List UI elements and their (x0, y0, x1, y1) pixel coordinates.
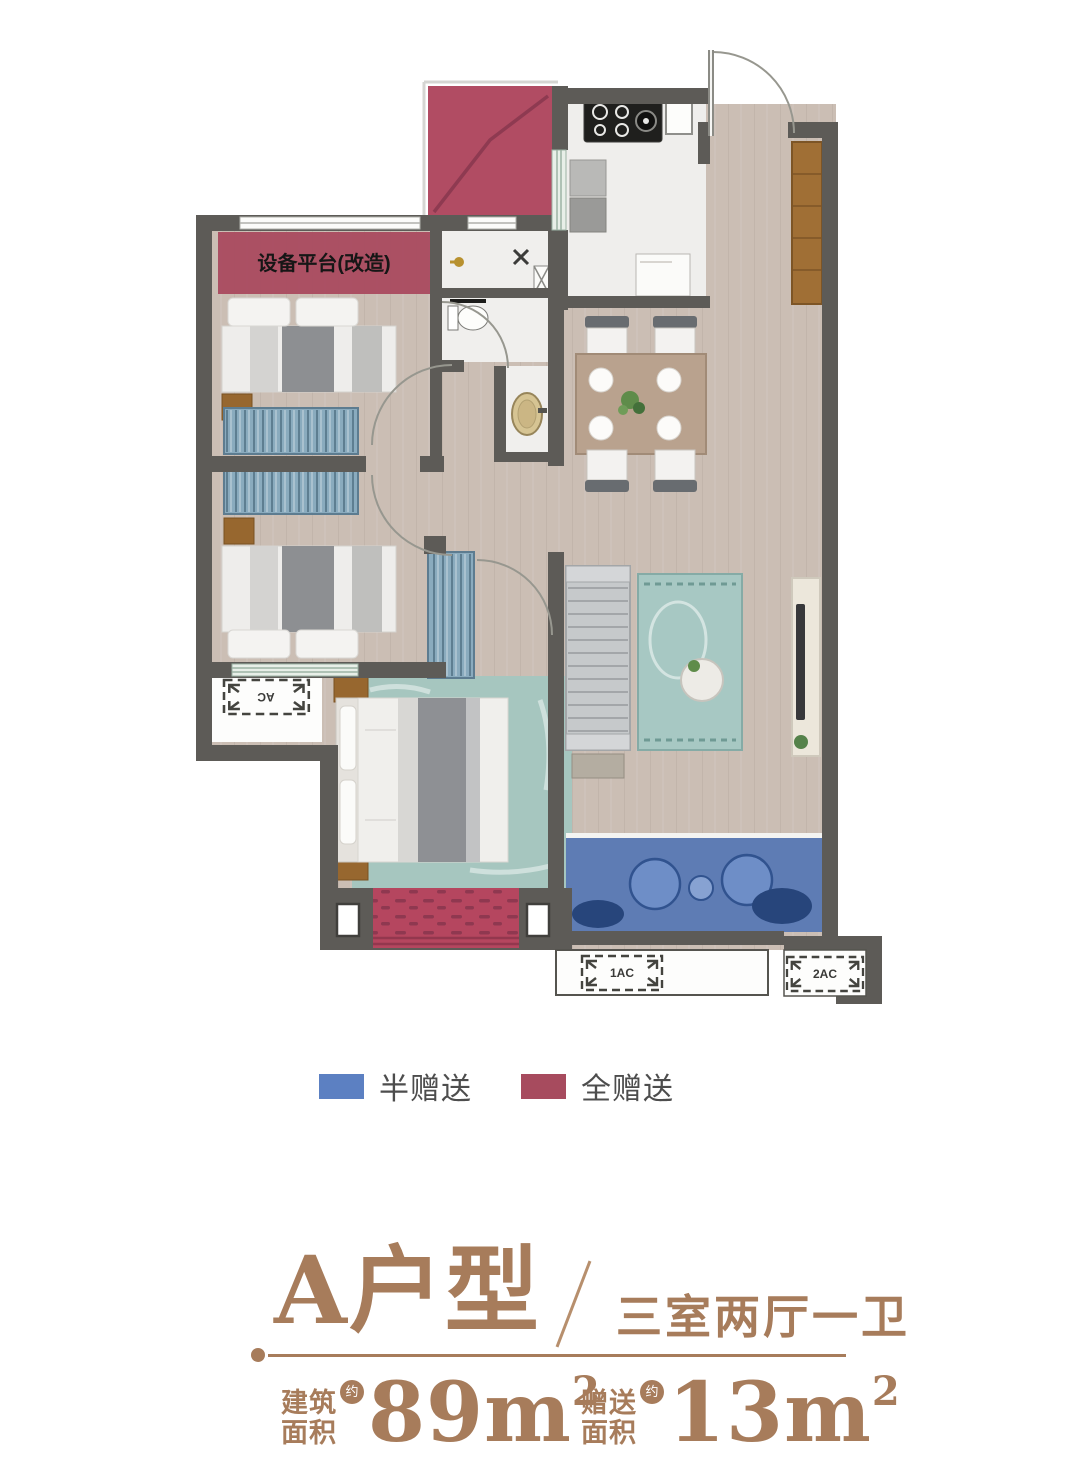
bathroom-window (468, 217, 516, 229)
balcony-plant (572, 900, 624, 928)
stat-gift-area-value: 13m (668, 1372, 872, 1454)
ac-platform-left: AC (212, 678, 322, 742)
top-full-gift-zone (424, 82, 558, 218)
balcony-plant (752, 888, 812, 924)
kitchen-cabinet (636, 254, 690, 296)
approx-badge: 约 (340, 1380, 364, 1404)
sofa (566, 566, 630, 750)
stat-label-top: 赠送 (581, 1388, 637, 1418)
wardrobe (224, 470, 358, 514)
tv (796, 604, 805, 720)
equipment-platform-label: 设备平台(改造) (257, 251, 390, 275)
stat-gift-area-label: 赠送 面积 (581, 1388, 637, 1448)
approx-badge: 约 (640, 1380, 664, 1404)
rug-plant (688, 660, 700, 672)
ac2-label: 2AC (813, 967, 837, 981)
title-divider-slash (556, 1261, 592, 1348)
full-gift-label: 全赠送 (581, 1064, 674, 1108)
balcony-lounge-chair (630, 859, 680, 909)
full-gift-swatch (521, 1074, 566, 1099)
shoe-cabinet (792, 142, 822, 304)
stat-gift-area: 赠送 面积 约 13m 2 (581, 1372, 900, 1454)
tv-plant (794, 735, 808, 749)
half-gift-label: 半赠送 (379, 1064, 472, 1108)
wardrobe (224, 408, 358, 454)
side-table (572, 754, 624, 778)
ac-platform-2: 2AC (784, 950, 866, 996)
tv-cabinet (792, 578, 820, 756)
stat-label-bottom: 面积 (281, 1418, 337, 1448)
bay-window-post (337, 904, 359, 936)
stat-label-top: 建筑 (281, 1388, 337, 1418)
bedroom2-window (232, 664, 358, 676)
balcony (566, 833, 822, 932)
title-underline (268, 1354, 846, 1357)
legend: 半赠送 全赠送 (0, 1064, 1080, 1100)
bedroom1-window (240, 217, 420, 229)
unit-layout-subtitle: 三室两厅一卫 (616, 1281, 910, 1347)
bed (336, 698, 508, 862)
stat-building-area-label: 建筑 面积 (281, 1388, 337, 1448)
title-line-dot (251, 1348, 265, 1362)
nightstand (224, 518, 254, 544)
dining-chair (585, 316, 629, 358)
balcony-table (689, 876, 713, 900)
stove (584, 100, 662, 142)
stat-label-bottom: 面积 (581, 1418, 637, 1448)
kitchen-window (552, 150, 566, 230)
master-wardrobe (428, 552, 474, 678)
legend-item-half-gift: 半赠送 (319, 1064, 472, 1108)
carpet-full-gift-zone (373, 888, 519, 948)
ac-side-label: AC (257, 690, 275, 704)
stat-building-area-value: 89m (368, 1372, 572, 1454)
half-gift-swatch (319, 1074, 364, 1099)
dining-chair (653, 316, 697, 358)
unit-title: A户型 (274, 1244, 541, 1338)
kitchen-window-box (666, 102, 692, 134)
floor-plan: 设备平台(改造) (0, 0, 1080, 1040)
ac1-label: 1AC (610, 966, 634, 980)
dining-chair (585, 450, 629, 492)
equipment-platform-zone: 设备平台(改造) (218, 232, 430, 294)
coffee-table (681, 659, 723, 701)
door-knob (454, 257, 464, 267)
kitchen-counter (570, 160, 606, 232)
stat-gift-area-exponent: 2 (872, 1368, 900, 1415)
stat-building-area: 建筑 面积 约 89m 2 (281, 1372, 600, 1454)
ac-platform-1: 1AC (556, 950, 768, 995)
legend-item-full-gift: 全赠送 (521, 1064, 674, 1108)
bay-window-post (527, 904, 549, 936)
dining-chair (653, 450, 697, 492)
balcony-sill (566, 833, 822, 838)
